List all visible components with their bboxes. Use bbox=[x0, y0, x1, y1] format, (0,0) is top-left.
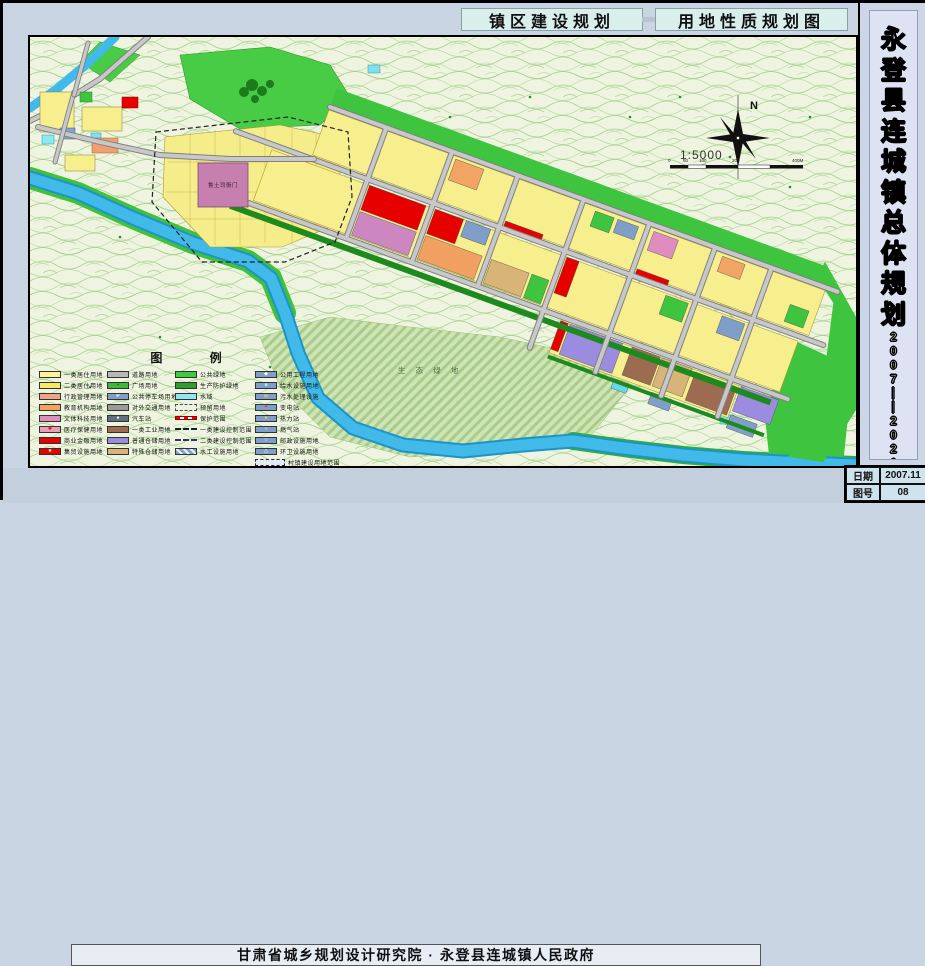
legend-item: 生产防护绿地 bbox=[175, 381, 251, 389]
legend-swatch bbox=[107, 426, 129, 433]
legend-swatch bbox=[175, 393, 197, 400]
legend-item: ◎污水处理设施 bbox=[255, 392, 340, 400]
legend-swatch bbox=[175, 371, 197, 378]
scalebar-400: 400M bbox=[792, 158, 804, 163]
legend: 图 例 一类居住用地二类居住用地行政管理用地教育机构用地文体科技用地✚医疗保健用… bbox=[39, 349, 339, 466]
title-period-char: 0 bbox=[890, 358, 897, 372]
legend-column-2: 道路用地▪广场用地P公共停车场用地对外交通用地●汽车站一类工业用地普通仓储用地特… bbox=[107, 370, 171, 455]
legend-item: 文体科技用地 bbox=[39, 414, 103, 422]
legend-item: 普通仓储用地 bbox=[107, 436, 171, 444]
legend-item-label: 行政管理用地 bbox=[64, 392, 103, 401]
eco-green-label: 生 态 绿 地 bbox=[398, 365, 462, 375]
legend-item-label: 一类居住用地 bbox=[64, 370, 103, 379]
legend-swatch-icon: ✚ bbox=[48, 427, 52, 432]
legend-swatch-icon: ◎ bbox=[264, 394, 268, 399]
legend-swatch-icon: ■ bbox=[265, 383, 268, 388]
title-period-char: 0 bbox=[890, 344, 897, 358]
title-char: 总 bbox=[881, 208, 906, 239]
credit-box: 甘肃省城乡规划设计研究院 · 永登县连城镇人民政府 bbox=[71, 944, 761, 966]
legend-swatch bbox=[175, 382, 197, 389]
title-period-char: 2 bbox=[890, 330, 897, 344]
legend-swatch: P bbox=[107, 393, 129, 400]
legend-item-label: 污水处理设施 bbox=[280, 392, 319, 401]
legend-item-label: 生产防护绿地 bbox=[200, 381, 239, 390]
legend-swatch bbox=[255, 459, 285, 466]
title-char: 连 bbox=[881, 117, 906, 148]
legend-swatch: ▪ bbox=[107, 382, 129, 389]
legend-item-label: 邮政设施用地 bbox=[280, 436, 319, 445]
legend-swatch: ✦ bbox=[255, 404, 277, 411]
legend-column-1: 一类居住用地二类居住用地行政管理用地教育机构用地文体科技用地✚医疗保健用地商业金… bbox=[39, 370, 103, 455]
legend-item-label: 二类建设控制范围 bbox=[200, 436, 252, 445]
legend-item-label: 公用工程用地 bbox=[280, 370, 319, 379]
legend-swatch bbox=[39, 437, 61, 444]
legend-item-label: 商业金融用地 bbox=[64, 436, 103, 445]
legend-item-label: 燃气站 bbox=[280, 425, 300, 434]
legend-item: ●热力站 bbox=[255, 414, 340, 422]
legend-swatch bbox=[39, 404, 61, 411]
legend-item: 水域 bbox=[175, 392, 251, 400]
legend-swatch bbox=[107, 448, 129, 455]
legend-swatch: ◎ bbox=[255, 393, 277, 400]
title-period-char: — bbox=[887, 401, 901, 413]
legend-item-label: 一类工业用地 bbox=[132, 425, 171, 434]
legend-item-label: 预留用地 bbox=[200, 403, 226, 412]
legend-swatch-icon: ☆ bbox=[264, 438, 268, 443]
legend-swatch-icon: ◆ bbox=[264, 372, 268, 377]
title-char: 镇 bbox=[881, 178, 906, 209]
legend-swatch: ○ bbox=[255, 426, 277, 433]
legend-item: 预留用地 bbox=[175, 403, 251, 411]
legend-swatch-icon: P bbox=[116, 394, 119, 399]
legend-swatch bbox=[107, 371, 129, 378]
legend-item: 特殊仓储用地 bbox=[107, 447, 171, 455]
plan-title-right: 用地性质规划图 bbox=[655, 8, 848, 31]
legend-item: 公共绿地 bbox=[175, 370, 251, 378]
legend-item-label: 一类建设控制范围 bbox=[200, 425, 252, 434]
legend-swatch bbox=[39, 382, 61, 389]
title-period-char: 2 bbox=[890, 414, 897, 428]
legend-item-label: 水工设施用地 bbox=[200, 447, 239, 456]
legend-item-label: 公共绿地 bbox=[200, 370, 226, 379]
scalebar-200: 200 bbox=[732, 158, 740, 163]
legend-item: 村镇建设用地范围 bbox=[255, 458, 340, 466]
legend-swatch bbox=[175, 448, 197, 455]
title-char: 永 bbox=[881, 25, 906, 56]
title-char: 划 bbox=[881, 300, 906, 331]
legend-swatch: ◆ bbox=[255, 371, 277, 378]
legend-swatch bbox=[175, 428, 197, 430]
legend-title: 图 例 bbox=[39, 349, 339, 366]
title-period-char: — bbox=[887, 387, 901, 399]
legend-swatch: ✚ bbox=[39, 426, 61, 433]
legend-item: 水工设施用地 bbox=[175, 447, 251, 455]
legend-swatch-icon: ● bbox=[265, 416, 268, 421]
legend-item-label: 普通仓储用地 bbox=[132, 436, 171, 445]
legend-swatch bbox=[107, 437, 129, 444]
title-period-char: 7 bbox=[890, 372, 897, 386]
legend-swatch-icon: ▪ bbox=[117, 383, 119, 388]
north-label: N bbox=[750, 100, 758, 112]
legend-item-label: 公共停车场用地 bbox=[132, 392, 178, 401]
legend-swatch-icon: ○ bbox=[265, 427, 268, 432]
date-label: 日期 bbox=[846, 467, 880, 484]
date-value: 2007.11 bbox=[880, 467, 925, 484]
legend-swatch: ☆ bbox=[255, 437, 277, 444]
legend-item-label: 文体科技用地 bbox=[64, 414, 103, 423]
legend-item-label: 给水设施用地 bbox=[280, 381, 319, 390]
legend-item: ✦变电站 bbox=[255, 403, 340, 411]
legend-swatch bbox=[175, 416, 197, 420]
legend-swatch bbox=[175, 404, 197, 411]
legend-item: 道路用地 bbox=[107, 370, 171, 378]
legend-item: 对外交通用地 bbox=[107, 403, 171, 411]
title-char: 登 bbox=[881, 56, 906, 87]
legend-item: 保护范围 bbox=[175, 414, 251, 422]
legend-item: ◆公用工程用地 bbox=[255, 370, 340, 378]
footer-band: 甘肃省城乡规划设计研究院 · 永登县连城镇人民政府 bbox=[3, 468, 858, 503]
legend-item: △环卫设施用地 bbox=[255, 447, 340, 455]
title-connector bbox=[642, 17, 656, 22]
title-period-char: 0 bbox=[890, 456, 897, 460]
legend-item-label: 特殊仓储用地 bbox=[132, 447, 171, 456]
legend-swatch: ★ bbox=[39, 448, 61, 455]
legend-item-label: 二类居住用地 bbox=[64, 381, 103, 390]
sheet-value: 08 bbox=[880, 484, 925, 501]
title-char: 体 bbox=[881, 239, 906, 270]
scalebar-50: 50 bbox=[683, 158, 689, 163]
legend-column-4: ◆公用工程用地■给水设施用地◎污水处理设施✦变电站●热力站○燃气站☆邮政设施用地… bbox=[255, 370, 340, 466]
legend-item: ■给水设施用地 bbox=[255, 381, 340, 389]
title-char: 规 bbox=[881, 269, 906, 300]
legend-swatch bbox=[39, 393, 61, 400]
legend-item: 商业金融用地 bbox=[39, 436, 103, 444]
legend-item-label: 医疗保健用地 bbox=[64, 425, 103, 434]
legend-item: 教育机构用地 bbox=[39, 403, 103, 411]
plan-sheet: 镇区建设规划 用地性质规划图 bbox=[0, 0, 925, 500]
legend-item: P公共停车场用地 bbox=[107, 392, 171, 400]
legend-item: 行政管理用地 bbox=[39, 392, 103, 400]
legend-item: ★集贸设施用地 bbox=[39, 447, 103, 455]
legend-item-label: 集贸设施用地 bbox=[64, 447, 103, 456]
title-period-char: 2 bbox=[890, 442, 897, 456]
legend-item-label: 广场用地 bbox=[132, 381, 158, 390]
legend-item: 一类建设控制范围 bbox=[175, 425, 251, 433]
legend-swatch bbox=[107, 404, 129, 411]
plan-title-left: 镇区建设规划 bbox=[461, 8, 643, 31]
title-char: 城 bbox=[881, 147, 906, 178]
heritage-site-label: 鲁土司衙门 bbox=[208, 181, 238, 189]
legend-item-label: 变电站 bbox=[280, 403, 300, 412]
legend-item: ●汽车站 bbox=[107, 414, 171, 422]
legend-swatch-icon: △ bbox=[264, 449, 268, 454]
legend-item-label: 热力站 bbox=[280, 414, 300, 423]
legend-item-label: 教育机构用地 bbox=[64, 403, 103, 412]
legend-item-label: 对外交通用地 bbox=[132, 403, 171, 412]
heritage-site-block: 鲁土司衙门 bbox=[198, 163, 248, 207]
legend-swatch-icon: ✦ bbox=[264, 405, 268, 410]
sidebar: 永登县连城镇总体规划 2007——2020 bbox=[858, 3, 925, 503]
legend-swatch: ● bbox=[107, 415, 129, 422]
legend-item: ○燃气站 bbox=[255, 425, 340, 433]
title-period-char: 0 bbox=[890, 428, 897, 442]
legend-item: 一类工业用地 bbox=[107, 425, 171, 433]
legend-swatch bbox=[175, 439, 197, 441]
drawing-title-vertical: 永登县连城镇总体规划 2007——2020 bbox=[869, 10, 918, 460]
legend-swatch: ● bbox=[255, 415, 277, 422]
legend-swatch: ■ bbox=[255, 382, 277, 389]
legend-swatch: △ bbox=[255, 448, 277, 455]
scalebar-100: 100 bbox=[699, 158, 707, 163]
legend-swatch-icon: ● bbox=[117, 416, 120, 421]
legend-item: ▪广场用地 bbox=[107, 381, 171, 389]
title-block-table: 日期 2007.11 图号 08 bbox=[844, 465, 925, 503]
legend-swatch bbox=[39, 415, 61, 422]
legend-item-label: 水域 bbox=[200, 392, 213, 401]
legend-item-label: 环卫设施用地 bbox=[280, 447, 319, 456]
legend-item: ☆邮政设施用地 bbox=[255, 436, 340, 444]
legend-item: 二类建设控制范围 bbox=[175, 436, 251, 444]
legend-item: ✚医疗保健用地 bbox=[39, 425, 103, 433]
sheet-label: 图号 bbox=[846, 484, 880, 501]
legend-item-label: 道路用地 bbox=[132, 370, 158, 379]
legend-item: 一类居住用地 bbox=[39, 370, 103, 378]
legend-column-3: 公共绿地生产防护绿地水域预留用地保护范围一类建设控制范围二类建设控制范围水工设施… bbox=[175, 370, 251, 455]
legend-item-label: 村镇建设用地范围 bbox=[288, 458, 340, 467]
legend-item: 二类居住用地 bbox=[39, 381, 103, 389]
legend-item-label: 汽车站 bbox=[132, 414, 152, 423]
legend-item-label: 保护范围 bbox=[200, 414, 226, 423]
title-char: 县 bbox=[881, 86, 906, 117]
legend-swatch bbox=[39, 371, 61, 378]
legend-swatch-icon: ★ bbox=[48, 449, 52, 454]
